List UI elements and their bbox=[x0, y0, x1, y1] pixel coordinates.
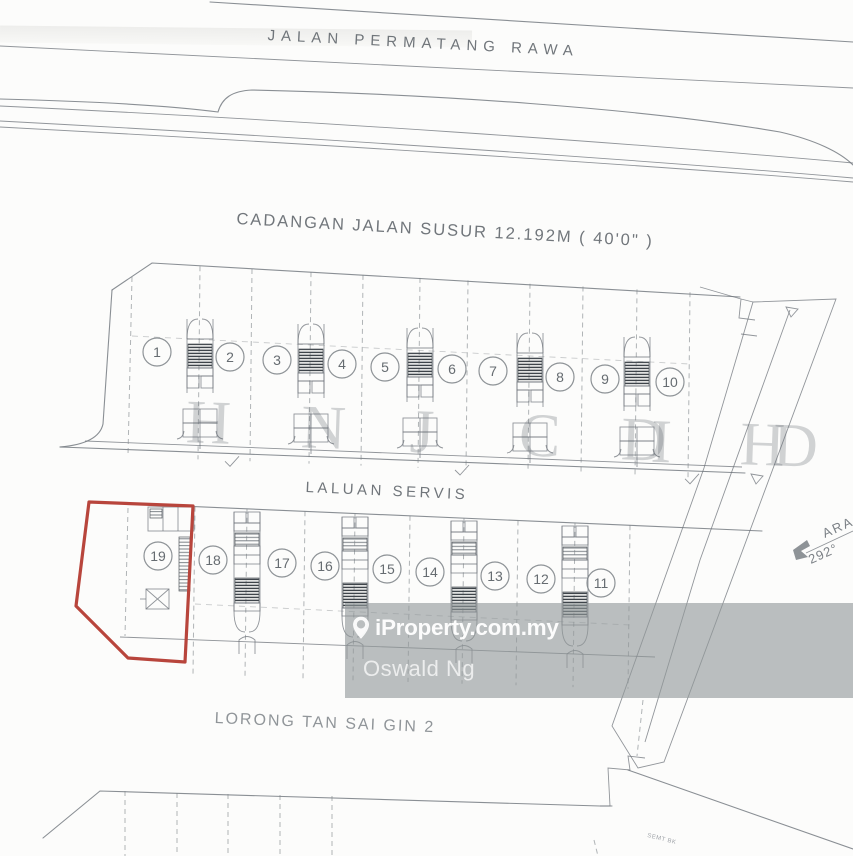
svg-text:15: 15 bbox=[379, 561, 395, 577]
lot-marker-15: 15 bbox=[373, 555, 401, 583]
ghost-letter: N bbox=[300, 396, 347, 460]
watermark: iProperty.com.my Oswald Ng bbox=[345, 603, 853, 698]
svg-text:18: 18 bbox=[205, 552, 221, 568]
lot-marker-7: 7 bbox=[479, 357, 507, 385]
svg-text:17: 17 bbox=[274, 555, 290, 571]
lot19-structures bbox=[125, 507, 194, 636]
lot-marker-13: 13 bbox=[481, 562, 509, 590]
svg-text:5: 5 bbox=[381, 359, 389, 375]
svg-text:12: 12 bbox=[533, 571, 549, 587]
lot-marker-4: 4 bbox=[328, 350, 356, 378]
lot-marker-19: 19 bbox=[144, 542, 172, 570]
svg-text:1: 1 bbox=[153, 344, 161, 360]
lot-marker-12: 12 bbox=[527, 565, 555, 593]
lot-marker-10: 10 bbox=[656, 368, 684, 396]
lot-marker-14: 14 bbox=[416, 558, 444, 586]
ghost-letter: J bbox=[409, 401, 435, 464]
svg-text:13: 13 bbox=[487, 568, 503, 584]
highlighted-lot-boundary bbox=[76, 502, 193, 662]
svg-text:6: 6 bbox=[448, 361, 456, 377]
ghost-letter: I bbox=[650, 411, 673, 474]
lot-marker-5: 5 bbox=[371, 353, 399, 381]
ghost-letter: D bbox=[772, 414, 819, 478]
lot-marker-17: 17 bbox=[268, 549, 296, 577]
map-pin-icon bbox=[351, 615, 371, 642]
svg-text:14: 14 bbox=[422, 564, 438, 580]
watermark-agent: Oswald Ng bbox=[363, 656, 475, 682]
lot-marker-9: 9 bbox=[591, 365, 619, 393]
ghost-letter: C bbox=[518, 404, 561, 467]
lot-marker-2: 2 bbox=[216, 343, 244, 371]
site-plan: .pl{stroke:#6d737a;fill:none;stroke-widt… bbox=[0, 0, 853, 856]
listing-siteplan-image: { "labels": { "top_road": "JALAN PERMATA… bbox=[0, 0, 853, 856]
lot-marker-1: 1 bbox=[143, 338, 171, 366]
svg-text:9: 9 bbox=[601, 371, 609, 387]
svg-text:8: 8 bbox=[556, 369, 564, 385]
watermark-brand: iProperty.com.my bbox=[375, 615, 559, 641]
stair-core bbox=[234, 512, 260, 654]
lot-marker-3: 3 bbox=[263, 346, 291, 374]
svg-text:11: 11 bbox=[594, 575, 609, 591]
svg-text:19: 19 bbox=[150, 548, 166, 564]
svg-text:16: 16 bbox=[317, 558, 333, 574]
lot-marker-18: 18 bbox=[199, 546, 227, 574]
svg-text:4: 4 bbox=[338, 356, 346, 372]
svg-text:10: 10 bbox=[662, 374, 678, 390]
lot-marker-11: 11 bbox=[587, 569, 615, 597]
ghost-letter: H bbox=[185, 391, 232, 455]
lot-marker-16: 16 bbox=[311, 552, 339, 580]
svg-text:3: 3 bbox=[273, 352, 281, 368]
svg-text:2: 2 bbox=[226, 349, 234, 365]
bottom-boundaries bbox=[43, 700, 853, 856]
lot-marker-8: 8 bbox=[546, 363, 574, 391]
svg-text:7: 7 bbox=[489, 363, 497, 379]
lot-marker-6: 6 bbox=[438, 355, 466, 383]
